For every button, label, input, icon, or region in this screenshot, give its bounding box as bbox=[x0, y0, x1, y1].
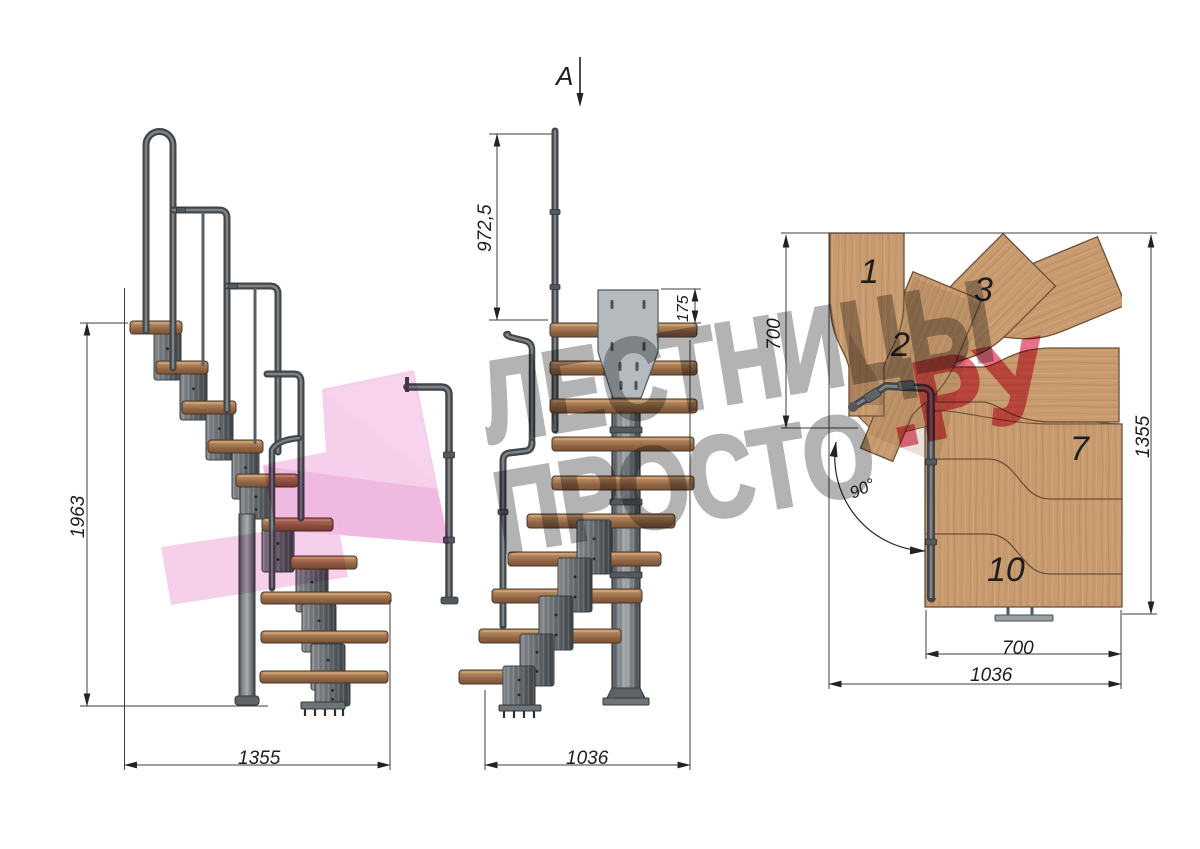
svg-text:1036: 1036 bbox=[566, 748, 609, 769]
svg-text:1963: 1963 bbox=[68, 495, 89, 538]
svg-text:10: 10 bbox=[987, 551, 1025, 589]
svg-text:A: A bbox=[554, 61, 573, 91]
svg-text:1036: 1036 bbox=[970, 665, 1013, 686]
svg-text:1355: 1355 bbox=[238, 748, 281, 769]
svg-text:7: 7 bbox=[1070, 430, 1090, 468]
svg-text:972,5: 972,5 bbox=[475, 204, 496, 252]
svg-text:1355: 1355 bbox=[1133, 415, 1154, 458]
svg-text:700: 700 bbox=[1002, 638, 1034, 659]
